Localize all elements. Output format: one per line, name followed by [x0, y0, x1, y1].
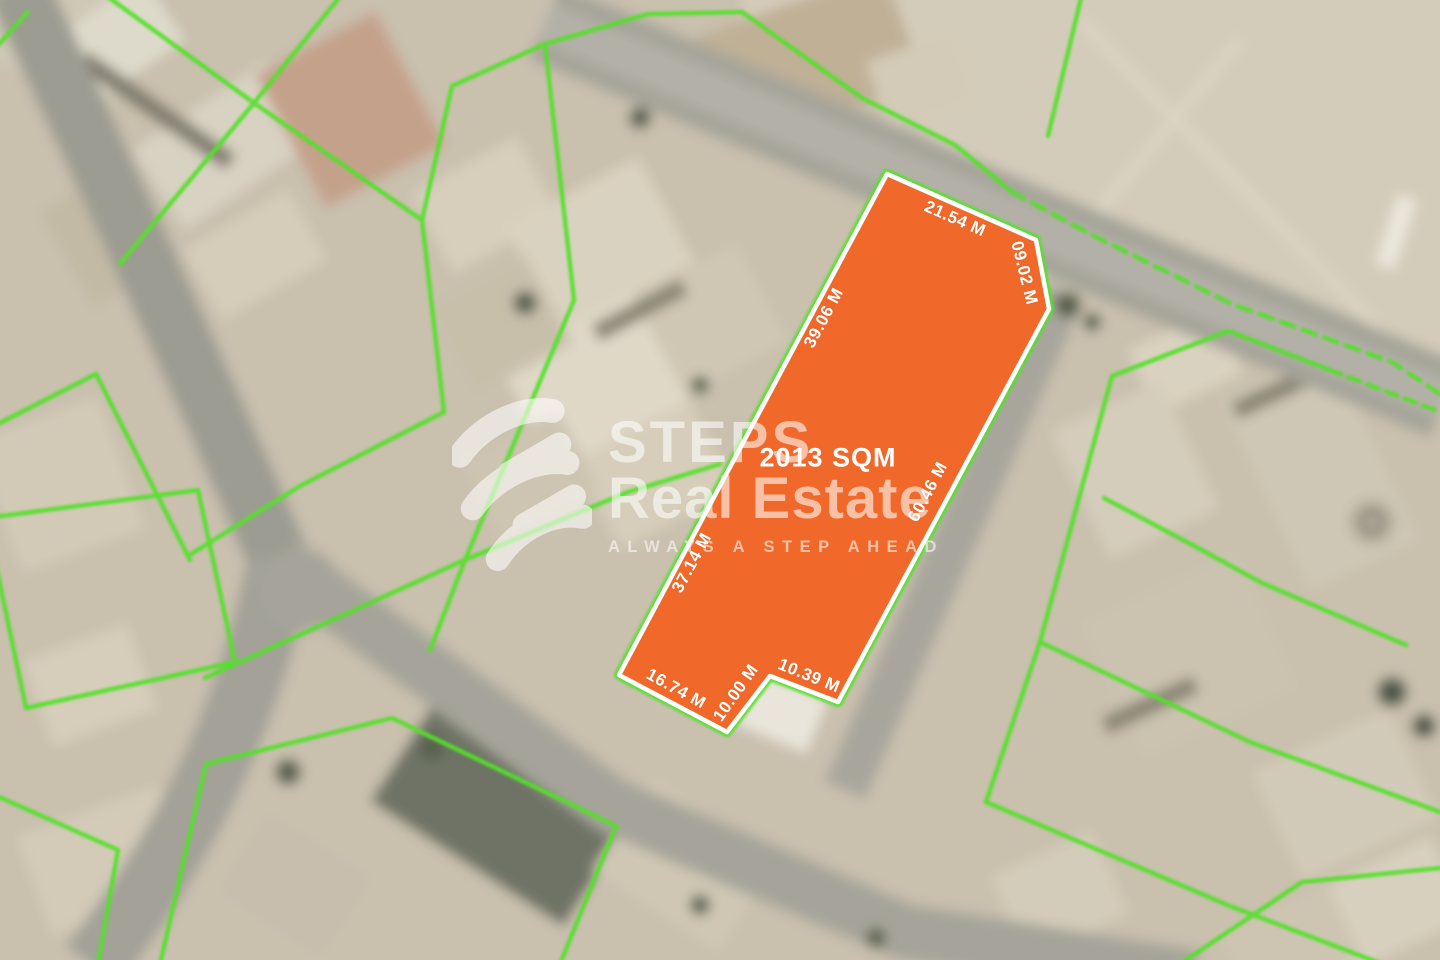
plot-area-label: 2013 SQM	[759, 443, 896, 474]
satellite-map: STEPS Real Estate ALWAYS A STEP AHEAD 20…	[0, 0, 1440, 960]
map-canvas	[0, 0, 1440, 960]
